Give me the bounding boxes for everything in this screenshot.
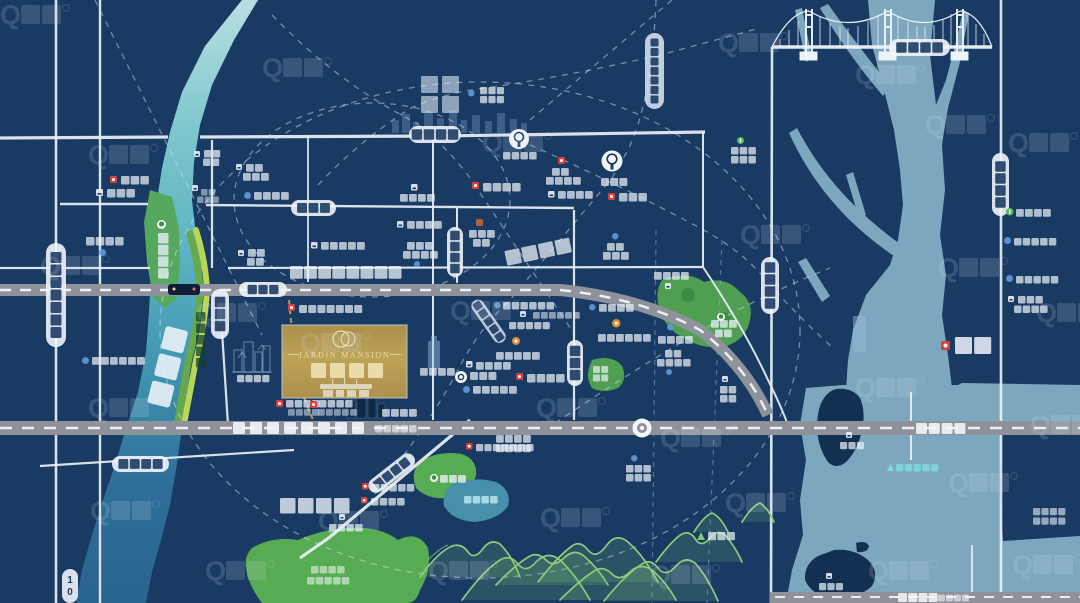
svg-text:Q: Q [740,220,761,250]
svg-text:Q: Q [300,328,321,358]
svg-text:Q: Q [88,140,109,170]
svg-text:Q: Q [90,496,111,526]
svg-text:Q: Q [40,251,61,281]
svg-text:Q: Q [1008,128,1029,158]
svg-text:Q: Q [318,506,339,536]
svg-text:Q: Q [855,373,876,403]
svg-text:Q: Q [196,298,217,328]
svg-text:Q: Q [482,128,503,158]
svg-text:Q: Q [0,0,21,30]
svg-text:Q: Q [855,60,876,90]
svg-text:Q: Q [450,296,471,326]
svg-text:1: 1 [67,575,73,586]
svg-text:Q: Q [88,393,109,423]
svg-text:Q: Q [536,393,557,423]
svg-text:Q: Q [1030,410,1051,440]
svg-text:Q: Q [725,488,746,518]
svg-text:Q: Q [262,53,283,83]
svg-text:Q: Q [925,110,946,140]
svg-text:Q: Q [718,28,739,58]
svg-text:Q: Q [540,503,561,533]
svg-text:Q: Q [1012,550,1033,580]
svg-text:Q: Q [938,253,959,283]
svg-text:Q: Q [650,560,671,590]
svg-text:Q: Q [205,556,226,586]
svg-text:Q: Q [428,556,449,586]
svg-text:Q: Q [1036,298,1057,328]
svg-text:Q: Q [868,556,889,586]
svg-text:Q: Q [948,468,969,498]
svg-text:0: 0 [67,587,73,598]
svg-text:Q: Q [660,423,681,453]
